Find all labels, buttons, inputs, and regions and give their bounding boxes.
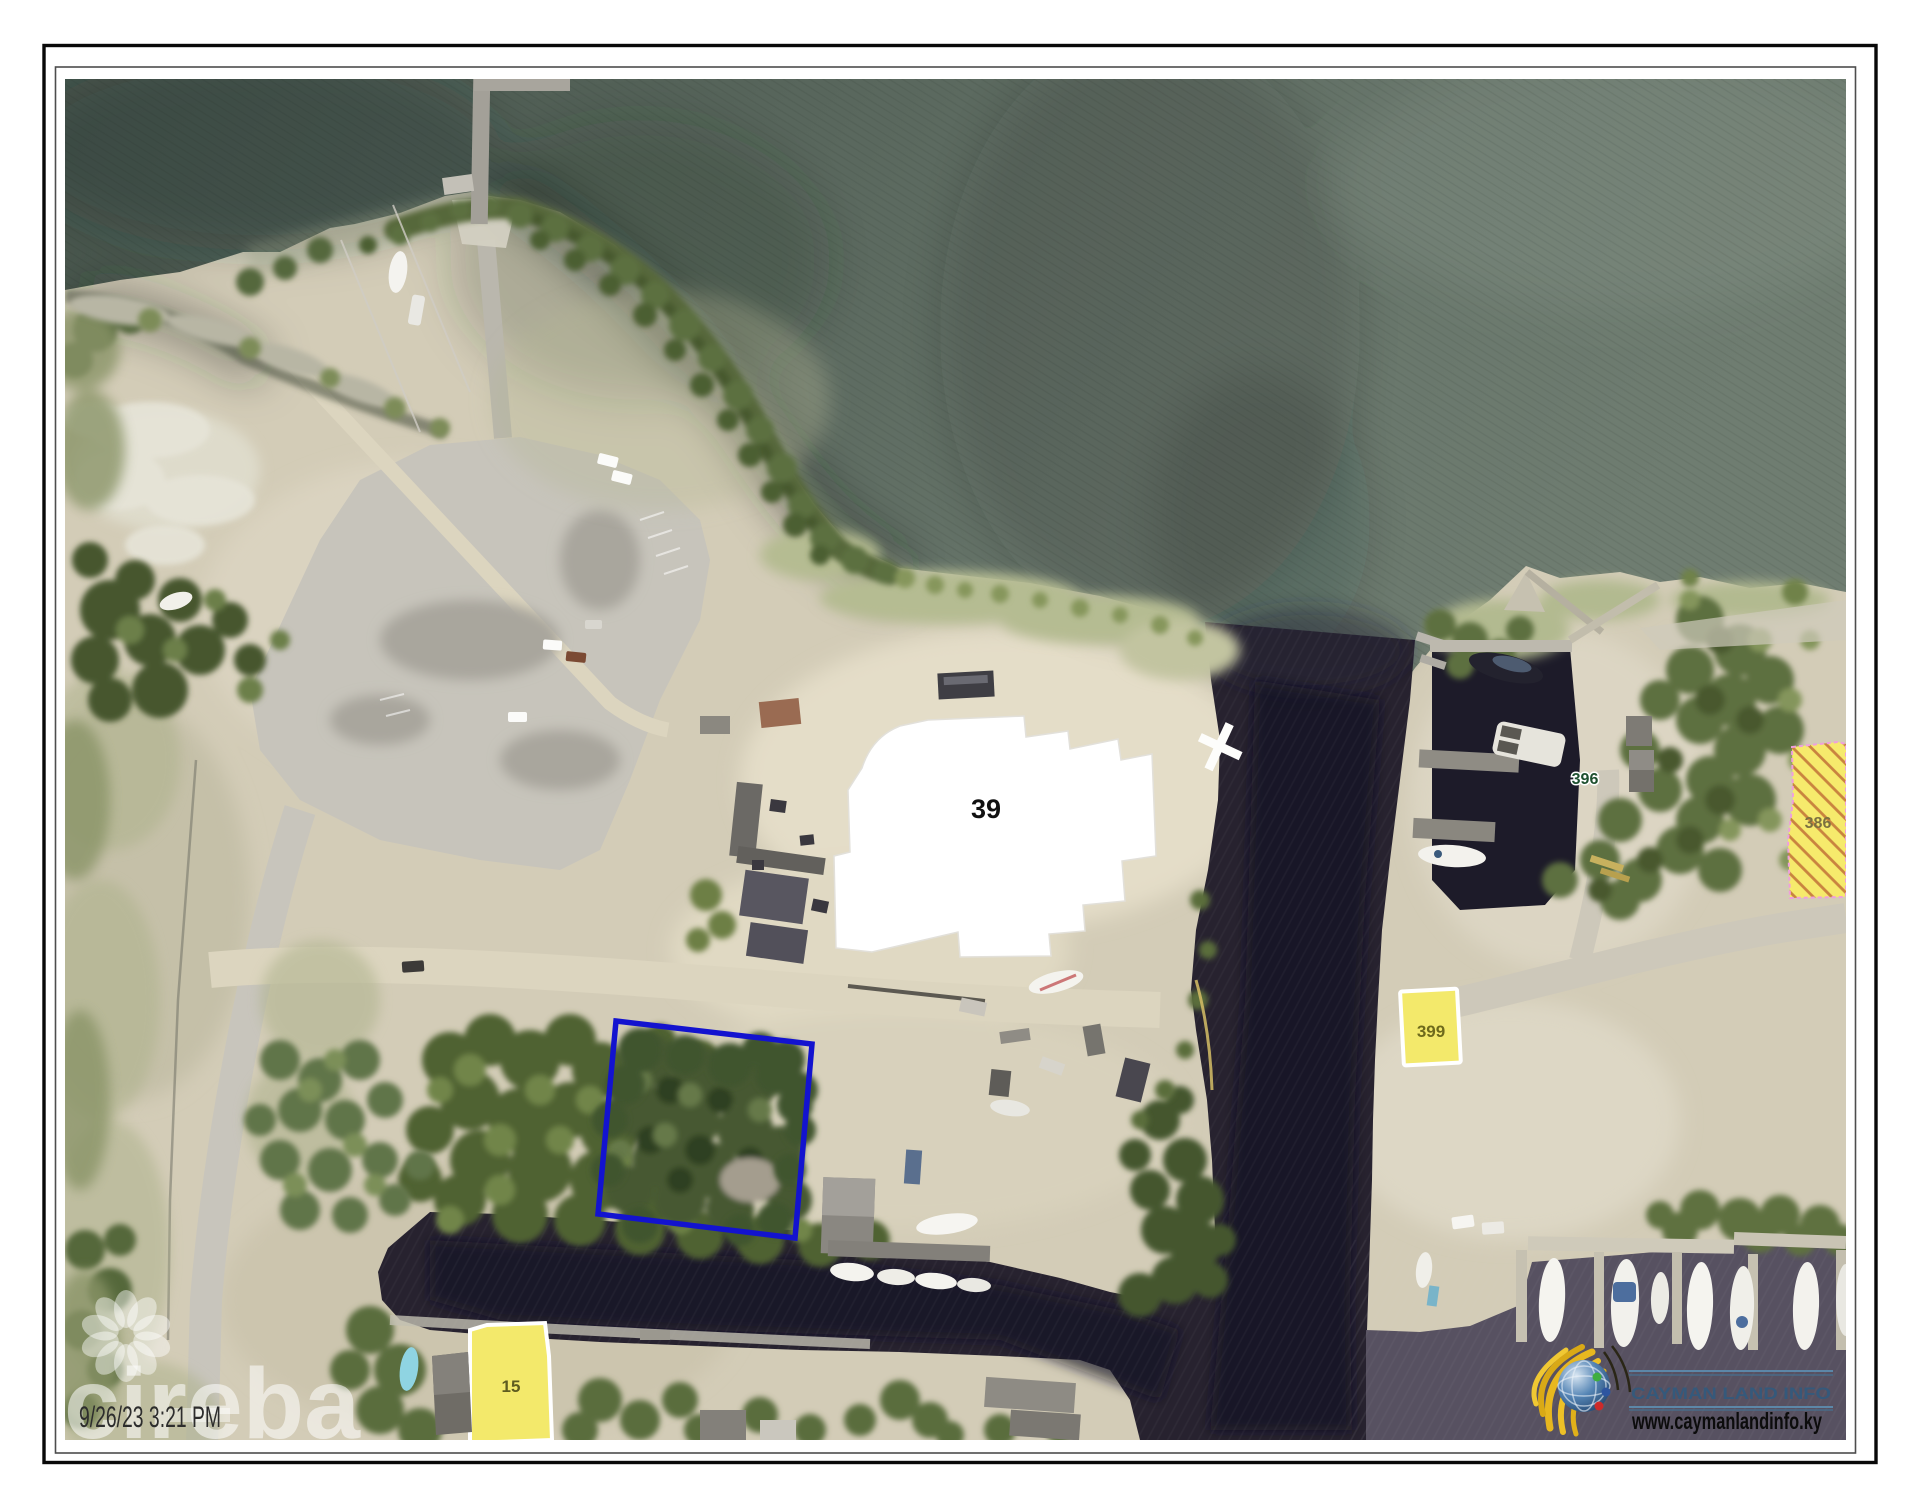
svg-text:9/26/23 3:21 PM: 9/26/23 3:21 PM [79,1401,221,1434]
svg-text:39: 39 [971,794,1001,824]
svg-text:CAYMAN LAND INFO: CAYMAN LAND INFO [1631,1384,1831,1403]
svg-text:399: 399 [1417,1022,1445,1041]
svg-text:www.caymanlandinfo.ky: www.caymanlandinfo.ky [1631,1408,1822,1434]
svg-text:396: 396 [1572,771,1599,788]
svg-text:15: 15 [502,1377,521,1396]
svg-text:386: 386 [1805,815,1832,832]
